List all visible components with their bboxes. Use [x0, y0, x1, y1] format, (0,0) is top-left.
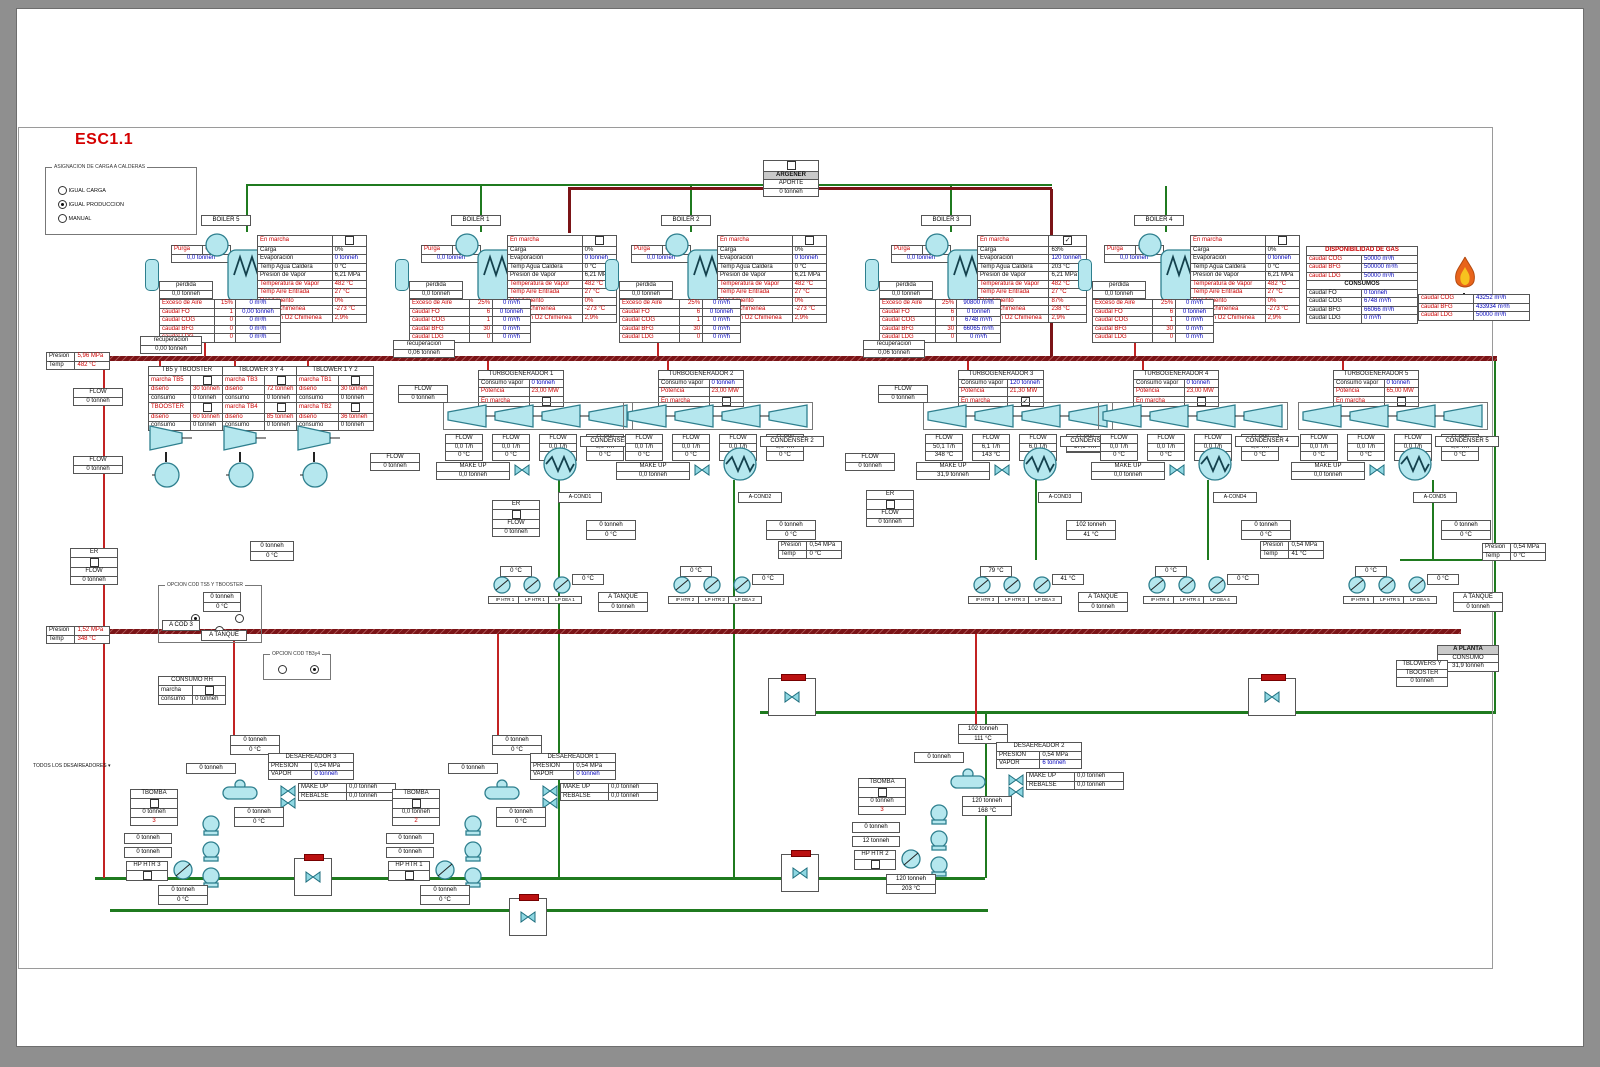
valve-icon[interactable]	[784, 691, 800, 703]
window-frame-left	[0, 0, 16, 1067]
valve-cap	[1261, 674, 1286, 681]
valve-icon[interactable]	[305, 871, 321, 883]
diagram-canvas: ESC1.1 ASIGNACION DE CARGA A CALDERAS IG…	[0, 0, 1600, 1067]
valve-cap	[791, 850, 811, 857]
window-frame-bottom	[0, 1047, 1600, 1067]
valve-cap	[304, 854, 324, 861]
window-frame-top	[0, 0, 1600, 8]
valve-cap	[519, 894, 539, 901]
valve-station[interactable]	[1248, 678, 1296, 716]
valve-station[interactable]	[294, 858, 332, 896]
window-frame-right	[1584, 0, 1600, 1067]
valve-station[interactable]	[509, 898, 547, 936]
valve-icon[interactable]	[792, 867, 808, 879]
valve-station[interactable]	[768, 678, 816, 716]
valve-cap	[781, 674, 806, 681]
valve-icon[interactable]	[520, 911, 536, 923]
valve-station[interactable]	[781, 854, 819, 892]
valve-icon[interactable]	[1264, 691, 1280, 703]
